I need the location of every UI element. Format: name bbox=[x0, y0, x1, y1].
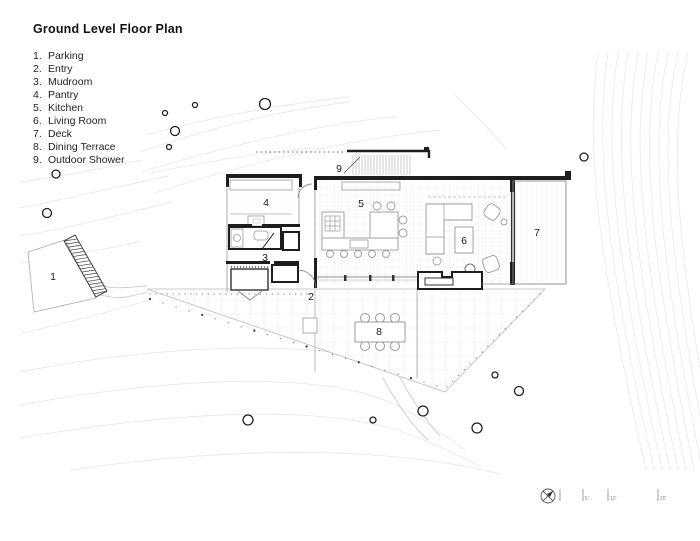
legend-item-entry: 2.Entry bbox=[33, 63, 233, 76]
room-label-entry: 2 bbox=[308, 291, 314, 303]
scale-ticks bbox=[560, 489, 658, 501]
room-label-kitchen: 5 bbox=[358, 198, 364, 210]
legend-item-pantry: 4.Pantry bbox=[33, 89, 233, 102]
legend-item-outdoor-shower: 9.Outdoor Shower bbox=[33, 154, 233, 167]
armchair bbox=[481, 254, 500, 273]
page-title: Ground Level Floor Plan bbox=[33, 22, 233, 36]
contour-lines-right bbox=[593, 52, 700, 470]
parking-area bbox=[28, 235, 107, 312]
scale-bar: 5' 10' 20' bbox=[541, 489, 667, 503]
kitchen-stools bbox=[327, 251, 390, 258]
scale-label-20ft: 20' bbox=[660, 496, 667, 502]
dining-terrace bbox=[147, 289, 545, 392]
room-label-dining-terrace: 8 bbox=[376, 326, 382, 338]
room-label-pantry: 4 bbox=[263, 197, 269, 209]
floor-plan-sheet: 1 2 3 4 5 6 7 8 9 5' 10' 20' Ground Leve… bbox=[0, 0, 700, 541]
armchair bbox=[482, 202, 501, 221]
legend-item-kitchen: 5.Kitchen bbox=[33, 102, 233, 115]
room-label-parking: 1 bbox=[50, 271, 56, 283]
room-label-mudroom: 3 bbox=[262, 252, 268, 264]
room-label-outdoor-shower: 9 bbox=[336, 163, 342, 175]
scale-label-10ft: 10' bbox=[610, 496, 617, 502]
legend-item-deck: 7.Deck bbox=[33, 128, 233, 141]
legend-item-living-room: 6.Living Room bbox=[33, 115, 233, 128]
title-block: Ground Level Floor Plan 1.Parking 2.Entr… bbox=[33, 22, 233, 167]
legend-item-dining-terrace: 8.Dining Terrace bbox=[33, 141, 233, 154]
room-label-living-room: 6 bbox=[461, 235, 467, 247]
room-legend: 1.Parking 2.Entry 3.Mudroom 4.Pantry 5.K… bbox=[33, 50, 233, 167]
mudroom-pantry-block bbox=[226, 174, 312, 300]
shower-screen-stripes bbox=[353, 155, 410, 175]
north-arrow-icon bbox=[541, 489, 555, 503]
legend-item-mudroom: 3.Mudroom bbox=[33, 76, 233, 89]
room-label-deck: 7 bbox=[534, 227, 540, 239]
legend-item-parking: 1.Parking bbox=[33, 50, 233, 63]
scale-label-5ft: 5' bbox=[585, 496, 589, 502]
sink-icon bbox=[350, 240, 368, 248]
